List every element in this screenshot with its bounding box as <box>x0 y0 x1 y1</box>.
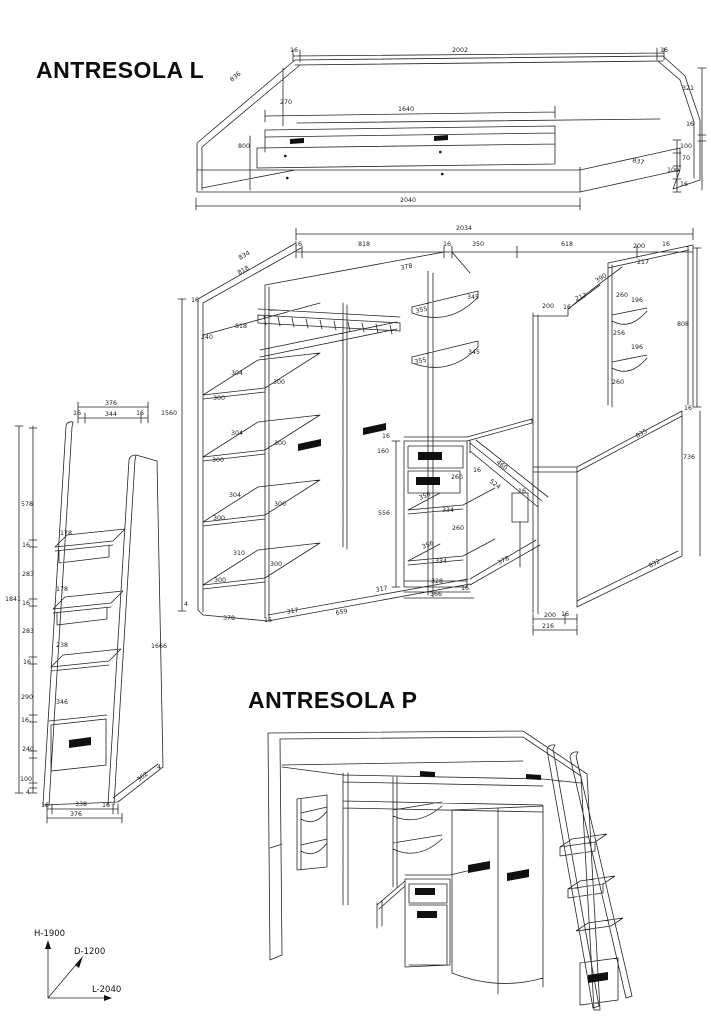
dim-label: 178 <box>60 530 72 537</box>
main-unit-linework <box>178 228 701 635</box>
dim-label: 356 <box>418 491 432 502</box>
axis-legend: H-1900 D-1200 L-2040 <box>20 920 150 1015</box>
dim-label: 16 <box>41 802 49 809</box>
dim-label: 460 <box>495 459 509 472</box>
bed-frame-drawing: 16 2002 16 836 270 1640 800 321 16 100 7… <box>180 40 711 220</box>
dim-label: 345 <box>468 349 480 356</box>
dim-label: 2040 <box>400 197 416 204</box>
dim-label: 16 <box>461 585 469 592</box>
dim-label: 1841 <box>5 596 21 603</box>
dim-label: 300 <box>214 577 226 584</box>
dim-label: 200 <box>542 303 554 310</box>
dim-label: 818 <box>235 323 247 330</box>
dim-label: 16 <box>473 467 481 474</box>
dim-label: 16 <box>22 600 30 607</box>
dim-label: 16 <box>443 241 451 248</box>
dim-label: 818 <box>237 265 251 277</box>
dim-label: 16 <box>563 304 571 311</box>
dim-label: 16 <box>382 433 390 440</box>
dim-label: 317 <box>375 585 388 594</box>
dim-label: 618 <box>561 241 573 248</box>
bed-frame-linework <box>196 48 706 210</box>
dim-label: 317 <box>286 607 299 616</box>
arrow-right-icon <box>104 995 112 1001</box>
dim-label: 836 <box>229 70 243 83</box>
dim-label: 378 <box>223 615 235 622</box>
dim-label: 16 <box>686 121 694 128</box>
dim-label: 300 <box>212 457 224 464</box>
dim-label: 344 <box>105 411 117 418</box>
dim-label: 16 <box>23 659 31 666</box>
dim-label: 4 <box>26 789 30 796</box>
dim-label: 240 <box>201 334 213 341</box>
dim-label: 818 <box>358 241 370 248</box>
dim-label: 304 <box>231 430 243 437</box>
dim-label: 16 <box>73 410 81 417</box>
dim-label: 334 <box>442 507 454 514</box>
dim-label: 524 <box>488 478 502 491</box>
title-antresola-p: ANTRESOLA P <box>248 687 418 714</box>
dim-label: 16 <box>21 717 29 724</box>
dim-label: 832 <box>648 558 662 570</box>
dim-label: 355 <box>415 306 428 315</box>
dim-label: 659 <box>335 608 348 617</box>
main-unit-drawing: 2034 16 818 16 350 618 200 16 834 818 16… <box>160 215 711 655</box>
dim-label: 736 <box>683 454 695 461</box>
dim-label: 100 <box>667 167 679 174</box>
dim-label: 338 <box>75 801 87 808</box>
dim-label: 196 <box>631 344 643 351</box>
dim-label: 376 <box>105 400 117 407</box>
dim-label: 283 <box>22 571 34 578</box>
antresola-p-linework <box>268 731 632 1010</box>
dim-label: 16 <box>561 611 569 618</box>
dim-label: 1640 <box>398 106 414 113</box>
dim-label: 304 <box>231 370 243 377</box>
dim-label: 217 <box>574 292 588 303</box>
arrow-diagonal-icon <box>75 956 83 968</box>
dim-label: 240 <box>22 746 34 753</box>
dim-label: 16 <box>102 802 110 809</box>
dim-label: 100 <box>20 776 32 783</box>
dim-label: 70 <box>682 155 690 162</box>
dim-label: 837 <box>632 157 645 167</box>
title-antresola-l: ANTRESOLA L <box>36 57 204 84</box>
dim-label: 345 <box>467 294 479 301</box>
dim-label: 300 <box>270 561 282 568</box>
dim-label: 16 <box>518 488 526 495</box>
dim-label: 321 <box>682 85 694 92</box>
antresola-p-drawing <box>110 715 711 1015</box>
dim-label: 200 <box>633 243 645 250</box>
dim-label: 16 <box>684 405 692 412</box>
dim-label: 808 <box>677 321 689 328</box>
dim-label: 346 <box>56 699 68 706</box>
dim-label: 216 <box>542 623 554 630</box>
bed-frame-dimensions: 16 2002 16 836 270 1640 800 321 16 100 7… <box>229 47 694 204</box>
dim-label: 556 <box>378 510 390 517</box>
dim-label: 196 <box>631 297 643 304</box>
dim-label: 300 <box>213 515 225 522</box>
dim-label: 2034 <box>456 225 472 232</box>
dim-label: 2002 <box>452 47 468 54</box>
axis-height-label: H-1900 <box>34 929 65 939</box>
dim-label: 300 <box>274 501 286 508</box>
dim-label: 4 <box>184 601 188 608</box>
arrow-up-icon <box>45 940 51 949</box>
dim-label: 160 <box>377 448 389 455</box>
dim-label: 260 <box>451 474 463 481</box>
dim-label: 16 <box>290 47 298 54</box>
technical-drawing-sheet: ANTRESOLA L ANTRESOLA P 16 2002 16 836 2… <box>0 0 711 1024</box>
dim-label: 1666 <box>151 643 167 650</box>
dim-label: 376 <box>70 811 82 818</box>
dim-label: 238 <box>56 642 68 649</box>
dim-label: 355 <box>414 357 427 366</box>
dim-label: 260 <box>452 525 464 532</box>
dim-label: 290 <box>21 694 33 701</box>
dim-label: 378 <box>400 263 413 272</box>
dim-label: 16 <box>264 617 272 624</box>
dim-label: 328 <box>431 578 443 585</box>
dim-label: 300 <box>213 395 225 402</box>
dim-label: 304 <box>229 492 241 499</box>
dim-label: 16 <box>680 181 688 188</box>
dim-label: 16 <box>22 542 30 549</box>
dim-label: 16 <box>662 241 670 248</box>
dim-label: 300 <box>273 379 285 386</box>
axis-length-label: L-2040 <box>92 985 121 995</box>
dim-label: 270 <box>280 99 292 106</box>
dim-label: 16 <box>660 47 668 54</box>
dim-label: 578 <box>21 501 33 508</box>
dim-label: 260 <box>616 292 628 299</box>
dim-label: 300 <box>274 440 286 447</box>
dim-label: 16 <box>191 297 199 304</box>
dim-label: 256 <box>613 330 625 337</box>
dim-label: 310 <box>233 550 245 557</box>
dim-label: 834 <box>238 250 252 262</box>
dim-label: 800 <box>238 143 250 150</box>
dim-label: 217 <box>637 259 649 266</box>
dim-label: 283 <box>22 628 34 635</box>
dim-label: 200 <box>544 612 556 619</box>
axis-depth-label: D-1200 <box>74 947 105 957</box>
dim-label: 260 <box>612 379 624 386</box>
dim-label: 16 <box>136 410 144 417</box>
dim-label: 334 <box>435 558 447 565</box>
dim-label: 16 <box>294 241 302 248</box>
dim-label: 178 <box>56 586 68 593</box>
dim-label: 350 <box>472 241 484 248</box>
dim-label: 366 <box>430 591 442 598</box>
dim-label: 100 <box>680 143 692 150</box>
